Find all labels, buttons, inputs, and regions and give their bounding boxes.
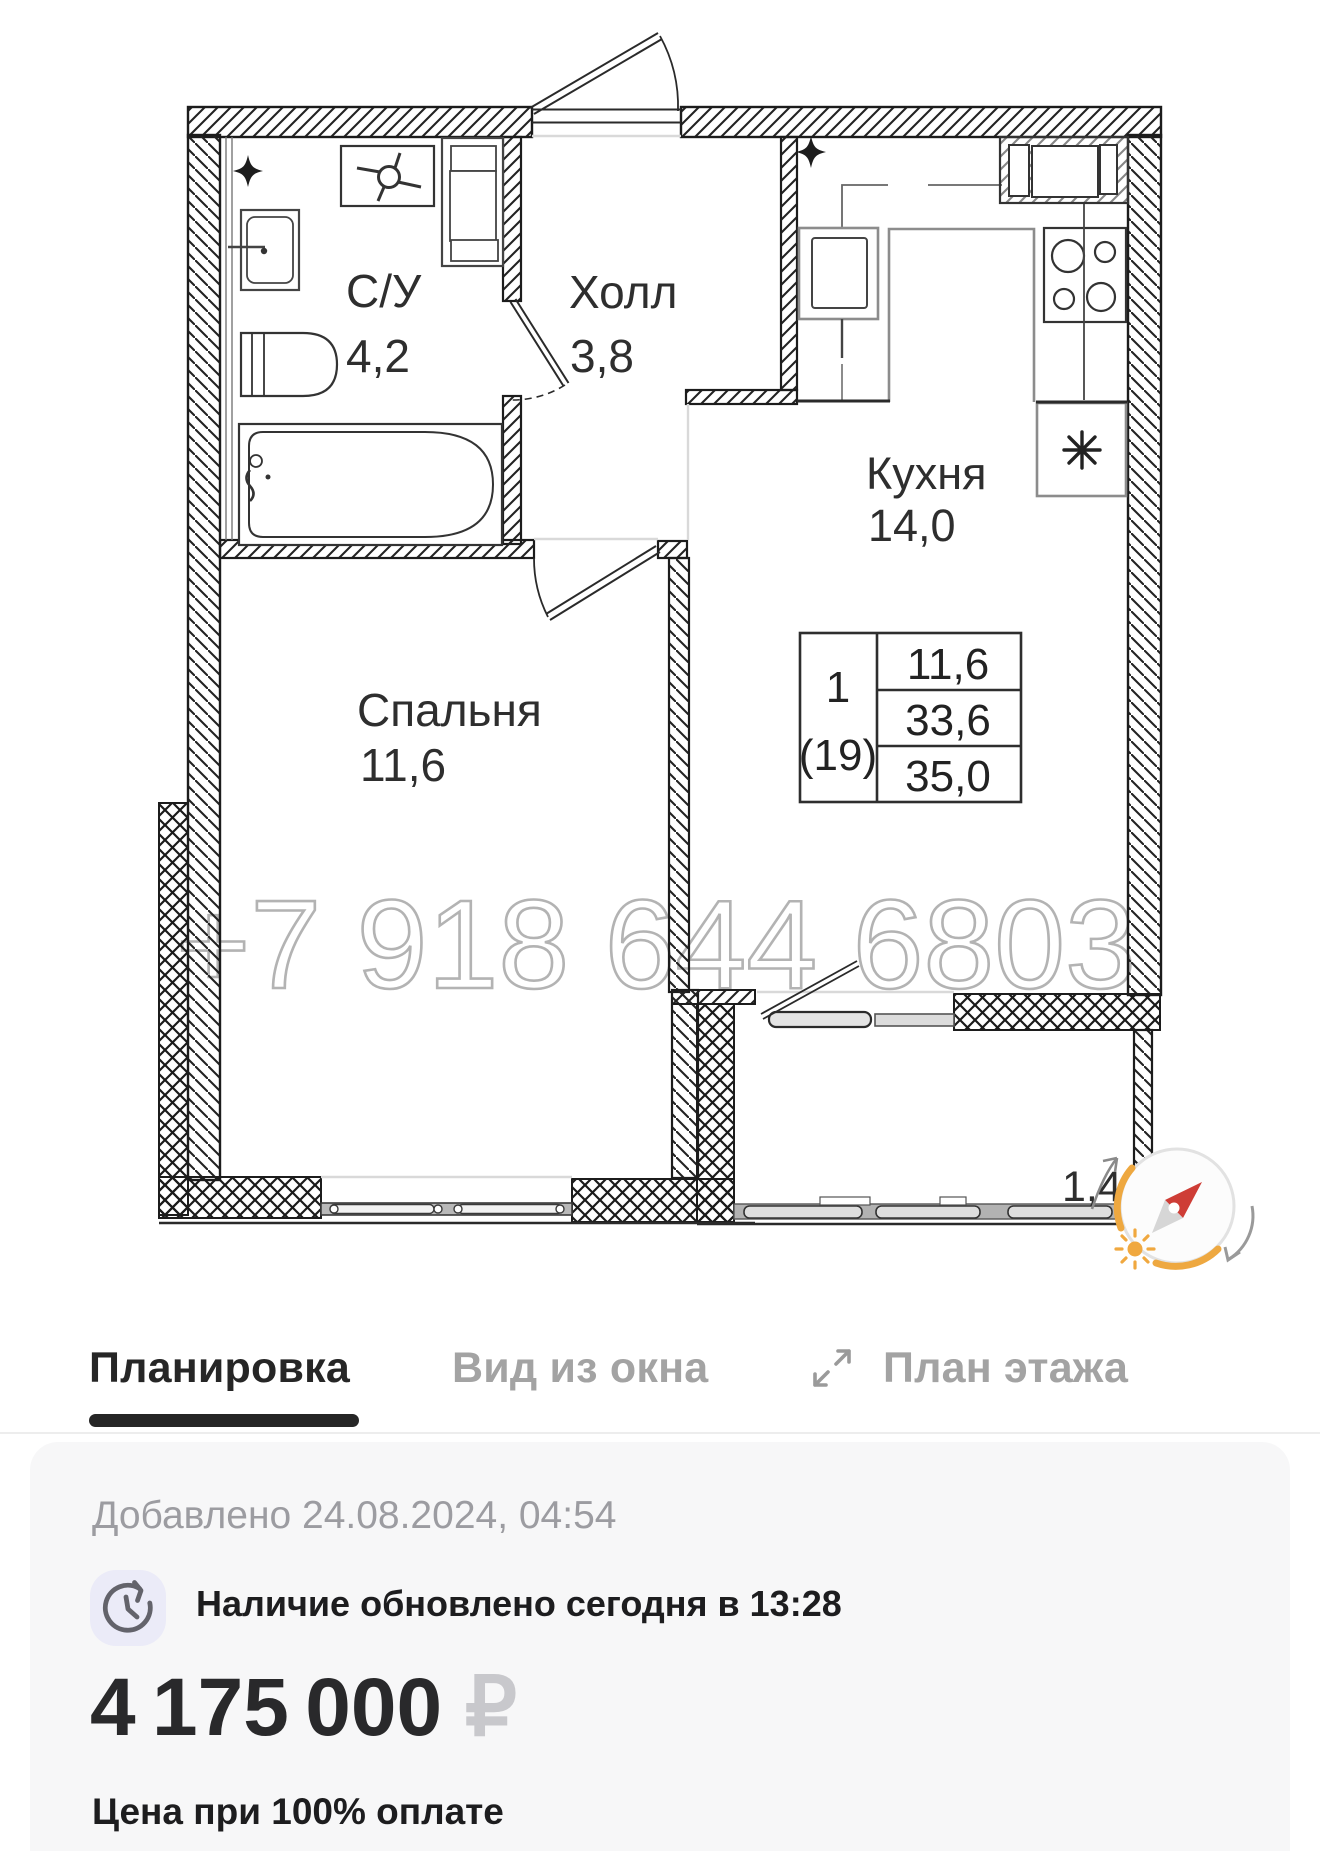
svg-text:14,0: 14,0: [868, 500, 956, 551]
svg-text:(19): (19): [799, 731, 877, 780]
svg-text:Кухня: Кухня: [866, 448, 986, 499]
svg-text:1,4: 1,4: [1062, 1163, 1122, 1211]
svg-text:С/У: С/У: [346, 265, 422, 317]
svg-text:35,0: 35,0: [905, 752, 991, 801]
svg-text:11,6: 11,6: [360, 739, 446, 791]
svg-text:Холл: Холл: [569, 266, 677, 318]
svg-text:1: 1: [826, 663, 850, 712]
svg-text:4,2: 4,2: [346, 330, 410, 382]
svg-text:11,6: 11,6: [907, 640, 989, 689]
svg-text:33,6: 33,6: [905, 696, 991, 745]
svg-text:3,8: 3,8: [570, 330, 634, 382]
svg-text:Спальня: Спальня: [357, 684, 542, 736]
